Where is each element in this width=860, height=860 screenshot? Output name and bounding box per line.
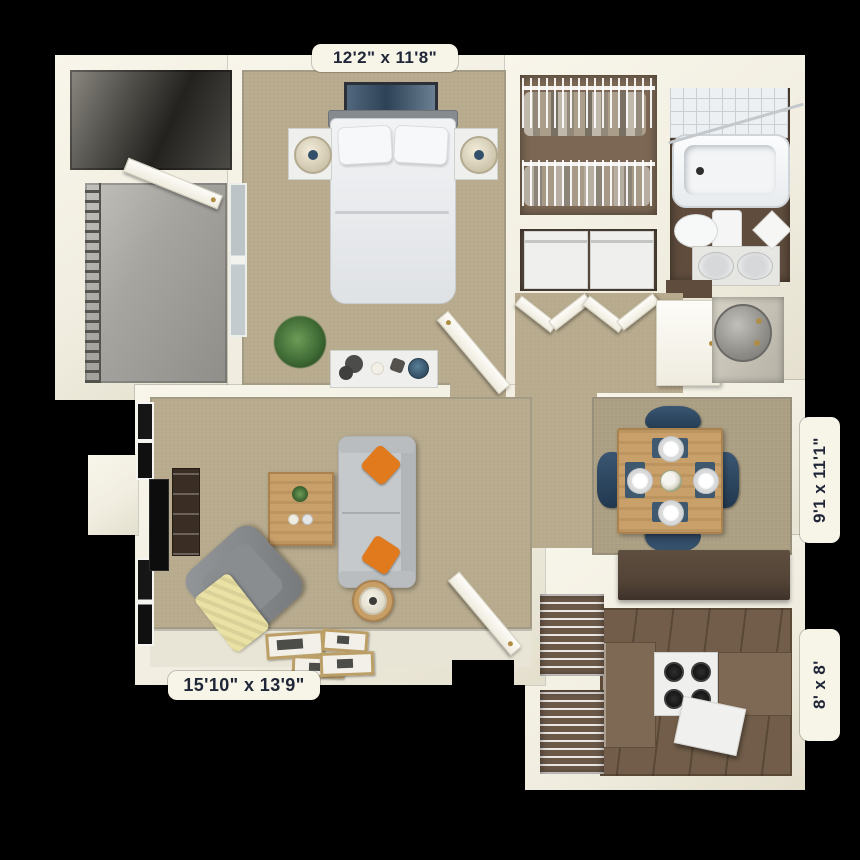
plate-left xyxy=(627,468,653,494)
decor-hat-small xyxy=(339,366,353,380)
patio-floor xyxy=(85,183,227,383)
living-window-lower xyxy=(136,558,154,646)
bathtub xyxy=(672,134,790,208)
sink-left xyxy=(698,252,734,280)
dimension-label-kitchen-text: 8' x 8' xyxy=(810,661,830,710)
flower-centerpiece xyxy=(660,470,682,492)
accent-lamp xyxy=(359,587,387,615)
bed-pillow-right xyxy=(393,125,449,166)
sofa-back xyxy=(401,437,415,587)
breakfast-bar xyxy=(618,550,790,600)
bathtub-drain xyxy=(696,167,704,175)
closet-wire-shelf-top xyxy=(522,78,655,128)
dryer xyxy=(590,231,654,289)
coaster xyxy=(302,514,313,525)
potted-plant xyxy=(274,316,326,368)
water-heater-pipe xyxy=(754,340,760,346)
wall-bay-bump xyxy=(88,455,138,535)
dimension-label-dining: 9'1 x 11'1" xyxy=(800,417,840,543)
dresser xyxy=(330,350,438,388)
closet-wire-shelf-bottom xyxy=(522,160,655,206)
lamp-finial xyxy=(474,150,484,160)
sink-right xyxy=(737,252,773,280)
decor-ball xyxy=(371,362,384,375)
pantry-shelves-upper xyxy=(540,594,604,676)
bed-pillow-left xyxy=(337,125,393,166)
media-console xyxy=(172,468,200,556)
picture-frame xyxy=(321,628,368,653)
dimension-label-living-text: 15'10" x 13'9" xyxy=(183,675,304,696)
sliding-glass-door xyxy=(229,183,247,337)
dimension-label-kitchen: 8' x 8' xyxy=(800,629,840,741)
dimension-label-dining-text: 9'1 x 11'1" xyxy=(810,437,830,523)
coffee-table xyxy=(268,472,334,546)
entry-opening xyxy=(452,660,514,685)
hall-closet-door xyxy=(656,300,720,386)
decor-box xyxy=(389,357,406,374)
storage-room xyxy=(70,70,232,170)
stove-burner xyxy=(691,662,711,682)
table-lamp-left xyxy=(294,136,332,174)
plate-right xyxy=(693,468,719,494)
kitchen-counter-left xyxy=(602,642,656,748)
coaster xyxy=(288,514,299,525)
plate-top xyxy=(658,436,684,462)
sofa-cushion-seam xyxy=(342,512,400,514)
floor-plan: 12'2" x 11'8" 9'1 x 11'1" 8' x 8' 15'10"… xyxy=(0,0,860,860)
washer xyxy=(524,231,588,289)
patio-railing xyxy=(85,183,101,383)
dimension-label-living: 15'10" x 13'9" xyxy=(168,671,320,700)
table-lamp-right xyxy=(460,136,498,174)
dining-table xyxy=(617,428,723,534)
decor-jar xyxy=(408,358,429,379)
blanket-fold xyxy=(335,211,449,214)
tv xyxy=(150,480,168,570)
table-plant xyxy=(292,486,308,502)
dimension-label-bedroom-text: 12'2" x 11'8" xyxy=(333,48,437,68)
stove-burner xyxy=(664,662,684,682)
plate-bottom xyxy=(658,500,684,526)
water-heater-pipe xyxy=(756,318,762,324)
toilet-bowl xyxy=(674,214,718,248)
living-window-upper xyxy=(136,402,154,480)
picture-frame xyxy=(320,651,375,677)
dimension-label-bedroom: 12'2" x 11'8" xyxy=(312,44,458,72)
pantry-shelves-lower xyxy=(540,690,604,774)
lamp-finial xyxy=(308,150,318,160)
water-heater xyxy=(714,304,772,362)
